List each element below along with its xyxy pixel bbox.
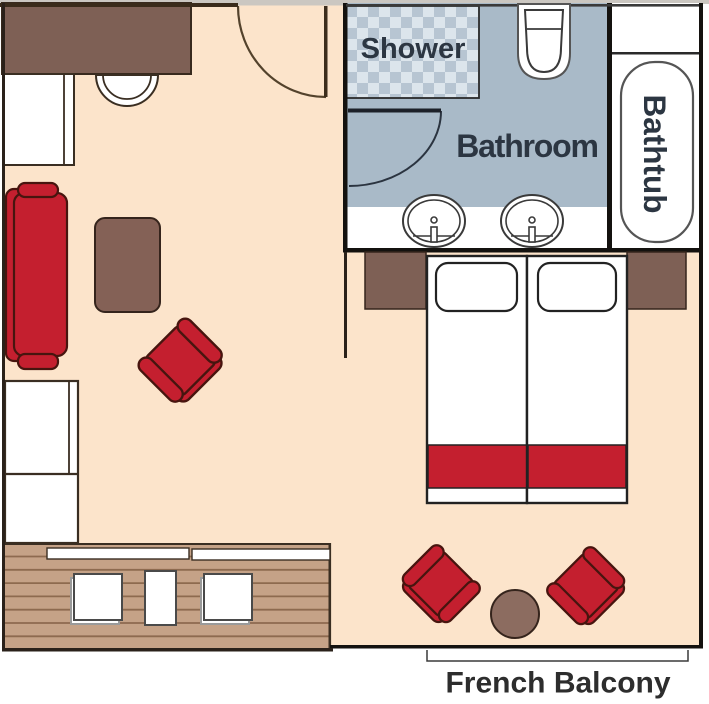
svg-text:Shower: Shower bbox=[361, 33, 466, 65]
svg-text:French Balcony: French Balcony bbox=[445, 667, 670, 700]
svg-text:Bathroom: Bathroom bbox=[456, 128, 598, 164]
svg-text:Bathtub: Bathtub bbox=[637, 95, 673, 214]
